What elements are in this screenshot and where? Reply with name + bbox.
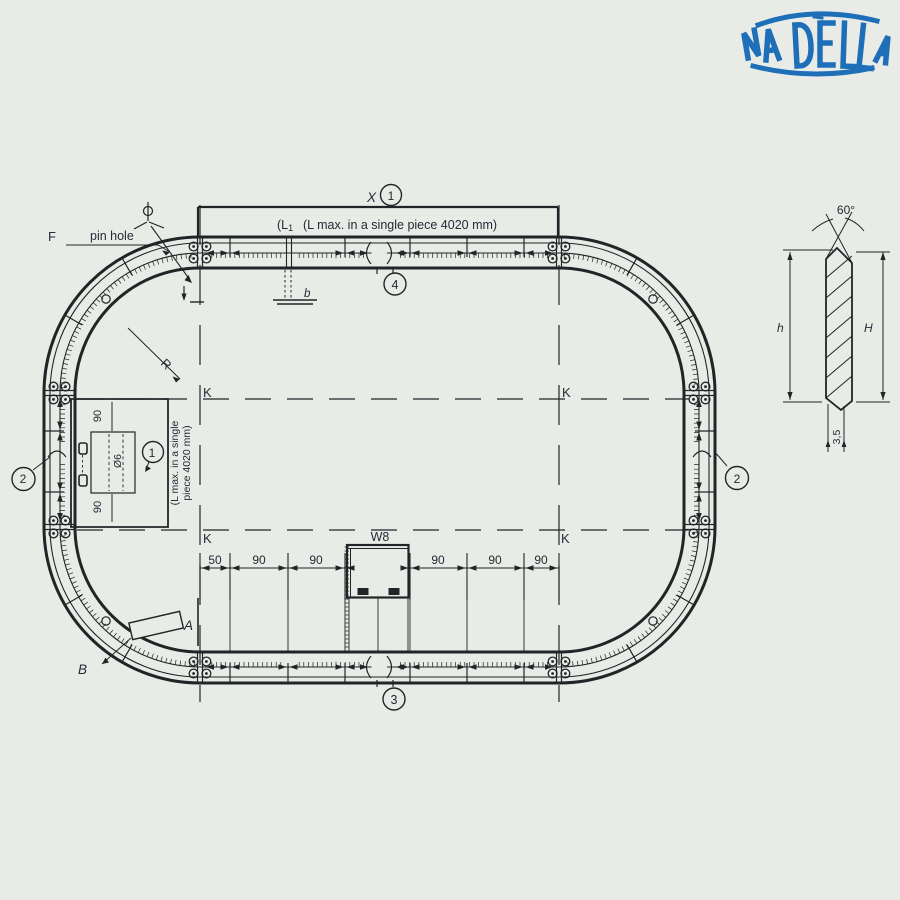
svg-text:90: 90 xyxy=(92,501,104,513)
svg-text:3: 3 xyxy=(391,693,398,707)
svg-text:h: h xyxy=(777,321,784,335)
svg-text:piece 4020 mm): piece 4020 mm) xyxy=(181,425,193,500)
svg-text:H: H xyxy=(864,321,873,335)
svg-text:4: 4 xyxy=(392,278,399,292)
svg-text:90: 90 xyxy=(534,553,548,567)
svg-text:(L max. in a single piece 4020: (L max. in a single piece 4020 mm) xyxy=(303,218,497,232)
svg-text:90: 90 xyxy=(488,553,502,567)
svg-text:(L max. in a single: (L max. in a single xyxy=(169,420,181,505)
svg-text:1: 1 xyxy=(388,189,395,203)
svg-text:K: K xyxy=(561,531,570,546)
svg-text:50: 50 xyxy=(208,553,222,567)
svg-text:Ø6: Ø6 xyxy=(112,454,124,468)
svg-text:90: 90 xyxy=(252,553,266,567)
svg-text:pin hole: pin hole xyxy=(90,229,134,243)
svg-text:b: b xyxy=(304,288,311,300)
svg-text:2: 2 xyxy=(734,472,741,486)
svg-text:2: 2 xyxy=(20,472,27,486)
svg-text:K: K xyxy=(203,531,212,546)
svg-text:K: K xyxy=(203,385,212,400)
svg-text:90: 90 xyxy=(309,553,323,567)
svg-text:B: B xyxy=(78,662,87,677)
svg-text:60°: 60° xyxy=(837,203,855,217)
svg-text:1: 1 xyxy=(149,446,156,460)
svg-text:3,5: 3,5 xyxy=(831,430,843,445)
svg-text:F: F xyxy=(48,229,56,244)
svg-text:W8: W8 xyxy=(371,530,390,544)
svg-text:X: X xyxy=(366,190,377,205)
svg-text:90: 90 xyxy=(92,410,104,422)
svg-text:A: A xyxy=(183,618,193,633)
svg-text:K: K xyxy=(562,385,571,400)
svg-text:90: 90 xyxy=(431,553,445,567)
